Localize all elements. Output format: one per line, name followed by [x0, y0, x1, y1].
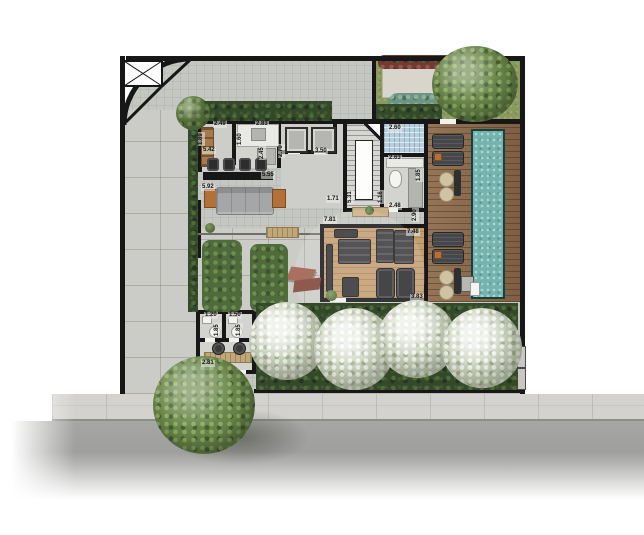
- dimension-label: 1.89: [198, 132, 205, 146]
- round-table-1: [439, 172, 454, 187]
- page-bottom-white: [0, 505, 644, 535]
- dimension-label: 2.60: [388, 125, 402, 132]
- sun-lounger-3: [432, 232, 464, 247]
- dimension-label: 5.31: [347, 190, 354, 204]
- dimension-label: 1.20: [204, 312, 218, 319]
- dimension-label: 2.81: [201, 360, 215, 367]
- door-opening-deck: [440, 119, 456, 124]
- stair-core: [355, 140, 373, 200]
- sun-lounger-1: [432, 134, 464, 149]
- dimension-label: 1.85: [236, 323, 243, 337]
- office-chair-1: [212, 342, 225, 355]
- tree-front-sidewalk: [153, 356, 255, 454]
- lounger-pillow-2: [434, 251, 442, 259]
- tree-rear-garden: [432, 46, 518, 122]
- wall-garden-divider: [372, 56, 376, 119]
- dimension-label: 2.70: [278, 144, 285, 158]
- bar-stool-2: [223, 158, 235, 171]
- dimension-label: 1.60: [237, 132, 244, 146]
- garden-low-wall: [198, 233, 320, 235]
- pool-ladder: [470, 282, 480, 296]
- hedge-left-strip: [188, 118, 198, 312]
- walkway-pavers: [124, 110, 196, 394]
- hedge-building-top: [196, 101, 332, 121]
- deck-towel-1: [454, 170, 461, 196]
- round-table-3: [439, 270, 454, 285]
- courtyard-planter-1: [202, 240, 242, 312]
- garden-bench: [266, 227, 299, 238]
- office-chair-2: [233, 342, 246, 355]
- potted-plant: [205, 223, 215, 233]
- bar-stool-1: [207, 158, 219, 171]
- restroom-door-1: [205, 338, 215, 342]
- lounger-pillow-1: [434, 153, 442, 161]
- dimension-label: 1.71: [326, 196, 340, 203]
- bar-stool-3: [239, 158, 251, 171]
- dimension-label: 5.55: [261, 172, 275, 179]
- dimension-label: 2.48: [388, 203, 402, 210]
- deck-towel-2: [454, 268, 461, 294]
- floor-plan-canvas: 2.49 2.83 5.42 1.89 1.60 2.45 2.70 3.50 …: [0, 0, 644, 535]
- lounge-sofa: [216, 187, 274, 215]
- dimension-label: 1.50: [228, 312, 242, 319]
- round-table-2: [439, 187, 454, 202]
- dimension-label: 5.42: [202, 147, 216, 154]
- elevator-1: [285, 127, 308, 153]
- dimension-label: 2.49: [213, 121, 227, 128]
- dimension-label: 7.48: [406, 229, 420, 236]
- street-fade-bottom: [0, 452, 644, 512]
- dimension-label: 3.83: [410, 294, 424, 301]
- dimension-label: 1.85: [416, 168, 423, 182]
- sidewalk: [52, 394, 644, 420]
- dimension-label: 2.63: [388, 155, 402, 162]
- dimension-label: 1.85: [214, 323, 221, 337]
- dimension-label: 2.83: [255, 121, 269, 128]
- dimension-label: 2.90: [412, 208, 419, 222]
- kitchen-sink: [251, 128, 266, 141]
- round-table-4: [439, 285, 454, 300]
- tree-top-left: [176, 96, 210, 130]
- dimension-label: 5.92: [201, 184, 215, 191]
- dimension-label: 2.45: [259, 146, 266, 160]
- garden-hedge: [376, 104, 442, 120]
- white-tree-4: [442, 308, 522, 388]
- dimension-label: 7.81: [323, 217, 337, 224]
- dimension-label: 1.16: [378, 190, 385, 204]
- dimension-label: 3.50: [314, 148, 328, 155]
- lap-pool: [471, 129, 505, 299]
- side-table-right: [272, 189, 286, 208]
- toilet: [389, 170, 402, 188]
- wall-left-boundary: [120, 56, 125, 394]
